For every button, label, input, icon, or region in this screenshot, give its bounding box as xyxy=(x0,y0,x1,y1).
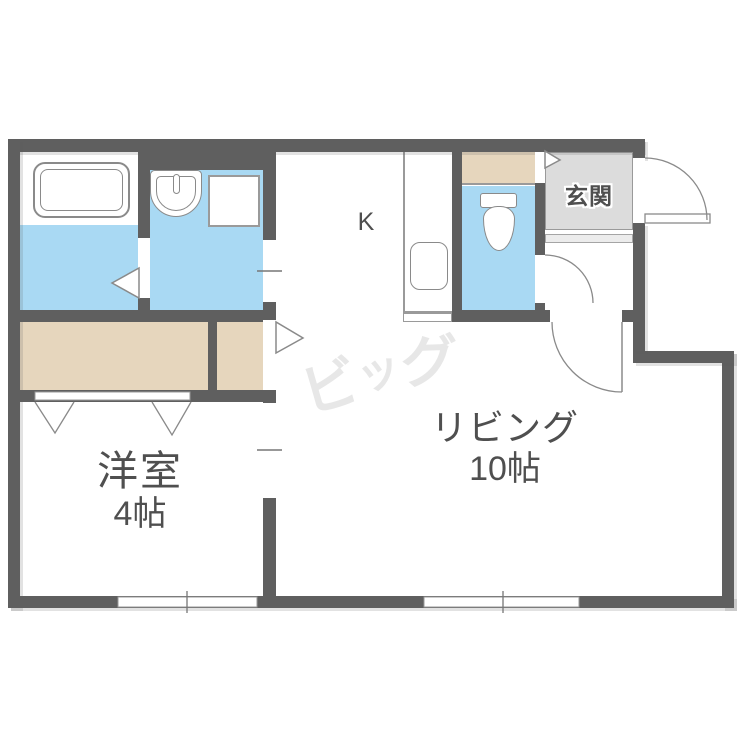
western-room-name: 洋室 xyxy=(40,448,240,494)
floor-plan: ビッグ xyxy=(0,0,750,750)
living-name: リビング xyxy=(395,407,615,449)
kitchen-text: K xyxy=(358,208,375,236)
door-toilet-arc-icon xyxy=(545,255,593,303)
entrance-text: 玄関 xyxy=(565,183,613,209)
door-front-arc-icon xyxy=(645,158,707,220)
label-living: リビング 10帖 xyxy=(395,407,615,489)
label-western-room: 洋室 4帖 xyxy=(40,448,240,534)
door-closet-swing-icon xyxy=(276,322,303,353)
living-size: 10帖 xyxy=(395,449,615,489)
door-storage-gap xyxy=(535,152,545,183)
symbols-layer xyxy=(0,0,750,750)
window-living xyxy=(424,597,579,607)
door-bathroom-swing-icon xyxy=(112,268,139,298)
door-front-gap xyxy=(633,158,645,223)
door-toilet-gap xyxy=(535,255,545,303)
door-bathroom-gap xyxy=(138,238,150,298)
door-storage-swing-icon xyxy=(545,151,560,168)
door-closet-gap xyxy=(263,320,276,390)
door-front-leaf-icon xyxy=(645,214,710,223)
closet-door-chevron-icon xyxy=(152,402,191,435)
door-living-arc-icon xyxy=(552,322,622,392)
label-kitchen: K xyxy=(340,208,392,237)
western-room-size: 4帖 xyxy=(40,494,240,534)
label-entrance: 玄関 xyxy=(545,177,633,211)
closet-opening xyxy=(35,392,190,400)
closet-door-chevron-icon xyxy=(35,402,74,433)
